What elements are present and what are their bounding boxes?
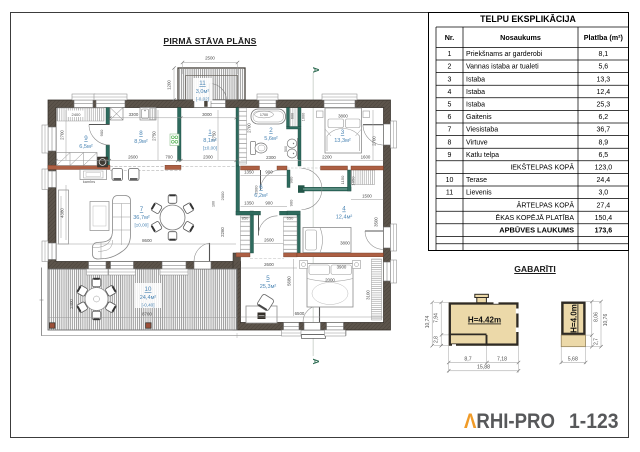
svg-text:ĒKAS KOPĒJĀ PLATĪBA: ĒKAS KOPĒJĀ PLATĪBA bbox=[496, 214, 575, 222]
svg-text:24,4: 24,4 bbox=[597, 177, 611, 184]
svg-text:25,3: 25,3 bbox=[597, 102, 611, 109]
svg-text:150,4: 150,4 bbox=[595, 215, 613, 222]
svg-text:1: 1 bbox=[448, 51, 452, 58]
svg-text:2: 2 bbox=[448, 64, 452, 71]
svg-text:13,3: 13,3 bbox=[597, 76, 611, 83]
svg-text:36,7: 36,7 bbox=[597, 127, 611, 134]
svg-text:9: 9 bbox=[448, 152, 452, 159]
svg-text:10: 10 bbox=[446, 177, 454, 184]
svg-text:11: 11 bbox=[446, 190, 453, 197]
svg-text:27,4: 27,4 bbox=[597, 202, 611, 209]
svg-text:5,6: 5,6 bbox=[598, 64, 608, 71]
svg-text:Viesistaba: Viesistaba bbox=[466, 127, 498, 134]
svg-text:8: 8 bbox=[448, 139, 452, 146]
svg-text:Istaba: Istaba bbox=[466, 89, 485, 96]
svg-text:Nosaukums: Nosaukums bbox=[500, 33, 541, 42]
svg-text:8,9: 8,9 bbox=[598, 139, 608, 146]
svg-text:Nr.: Nr. bbox=[445, 33, 455, 42]
svg-text:3: 3 bbox=[448, 76, 452, 83]
svg-text:7: 7 bbox=[448, 127, 452, 134]
svg-text:APBŪVES LAUKUMS: APBŪVES LAUKUMS bbox=[499, 226, 574, 235]
svg-text:123,0: 123,0 bbox=[595, 165, 613, 172]
svg-text:Virtuve: Virtuve bbox=[466, 139, 488, 146]
svg-text:IEKŠTELPAS KOPĀ: IEKŠTELPAS KOPĀ bbox=[510, 163, 574, 172]
svg-text:6: 6 bbox=[448, 114, 452, 121]
svg-text:6,5: 6,5 bbox=[598, 152, 608, 159]
svg-text:3,0: 3,0 bbox=[598, 190, 608, 197]
svg-text:173,6: 173,6 bbox=[595, 228, 613, 235]
svg-text:Vannas istaba ar tualeti: Vannas istaba ar tualeti bbox=[466, 64, 539, 71]
svg-text:Istaba: Istaba bbox=[466, 102, 485, 109]
svg-text:Platība (m²): Platība (m²) bbox=[584, 33, 624, 42]
svg-text:Lievenis: Lievenis bbox=[466, 190, 492, 197]
svg-text:ĀRTELPAS KOPĀ: ĀRTELPAS KOPĀ bbox=[517, 201, 575, 209]
svg-text:6,2: 6,2 bbox=[598, 114, 608, 121]
svg-text:Terase: Terase bbox=[466, 177, 487, 184]
svg-text:5: 5 bbox=[448, 102, 452, 109]
svg-text:8,1: 8,1 bbox=[598, 51, 608, 58]
svg-text:4: 4 bbox=[448, 89, 452, 96]
svg-text:Istaba: Istaba bbox=[466, 76, 485, 83]
svg-text:Katlu telpa: Katlu telpa bbox=[466, 152, 499, 159]
svg-text:Gaitenis: Gaitenis bbox=[466, 114, 492, 121]
svg-text:Priekšnams ar garderobi: Priekšnams ar garderobi bbox=[466, 51, 543, 58]
svg-text:12,4: 12,4 bbox=[597, 89, 611, 96]
